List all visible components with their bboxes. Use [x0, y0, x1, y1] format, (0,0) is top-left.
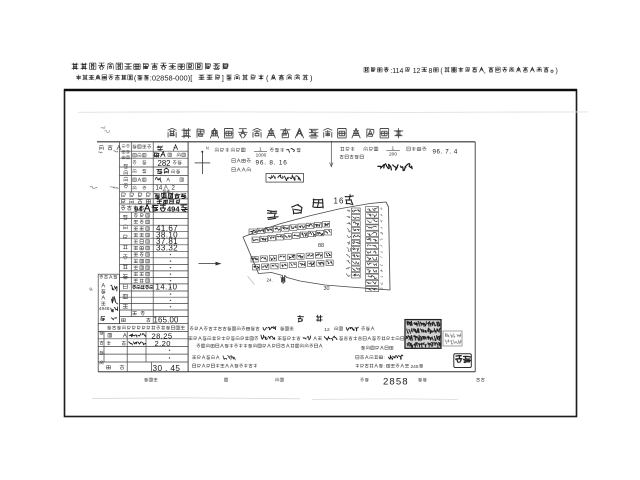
svg-text:494: 494	[167, 204, 180, 213]
svg-text:): )	[556, 68, 558, 75]
svg-text::: :	[426, 147, 427, 152]
svg-text:2.20: 2.20	[155, 339, 171, 348]
svg-text:96. 8. 16: 96. 8. 16	[256, 160, 288, 167]
svg-text::: :	[250, 158, 251, 163]
svg-text:1000: 1000	[256, 153, 267, 159]
svg-text:245: 245	[411, 364, 419, 370]
svg-text:8: 8	[429, 68, 433, 75]
svg-text:2858: 2858	[383, 376, 409, 387]
svg-text:165.00: 165.00	[154, 316, 180, 325]
svg-text:30: 30	[324, 286, 330, 292]
svg-text:12: 12	[413, 68, 421, 75]
svg-text:4948: 4948	[99, 306, 110, 312]
svg-text:14.10: 14.10	[156, 283, 178, 292]
svg-text:94: 94	[134, 204, 143, 213]
svg-text::: :	[250, 167, 251, 172]
svg-text:88: 88	[318, 243, 324, 249]
svg-text:200: 200	[389, 152, 397, 158]
svg-text::02858-000)[: :02858-000)[	[150, 73, 193, 82]
svg-text::: :	[363, 154, 364, 159]
svg-text::: :	[384, 355, 385, 360]
svg-text:33.32: 33.32	[156, 243, 178, 252]
svg-text:24.: 24.	[267, 278, 273, 283]
svg-text:N: N	[206, 146, 209, 151]
svg-text:30 . 45: 30 . 45	[153, 364, 181, 373]
svg-text:12: 12	[324, 327, 330, 333]
svg-text::: :	[245, 148, 246, 153]
svg-text:96. 7. 4: 96. 7. 4	[433, 149, 458, 156]
svg-text:]: ]	[222, 73, 224, 82]
svg-text:,: ,	[484, 68, 486, 75]
svg-text:282: 282	[158, 159, 171, 168]
svg-text::114: :114	[390, 68, 403, 75]
svg-text::: :	[384, 364, 385, 369]
svg-text:16: 16	[334, 197, 345, 206]
svg-text:14: 14	[156, 185, 163, 191]
svg-text::: :	[377, 147, 378, 152]
